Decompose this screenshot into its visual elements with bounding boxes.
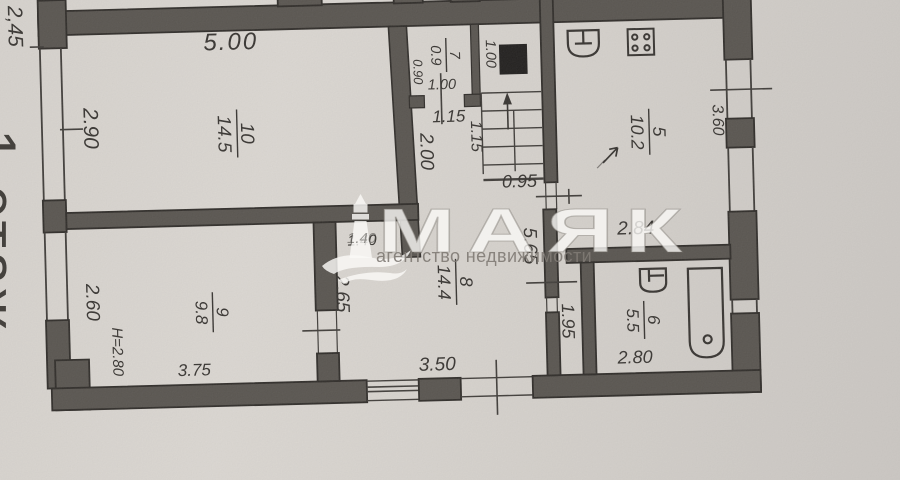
svg-text:1.40: 1.40 xyxy=(347,230,377,247)
svg-text:1 этаж: 1 этаж xyxy=(0,129,28,333)
svg-text:агентство недвижимости: агентство недвижимости xyxy=(376,246,592,266)
